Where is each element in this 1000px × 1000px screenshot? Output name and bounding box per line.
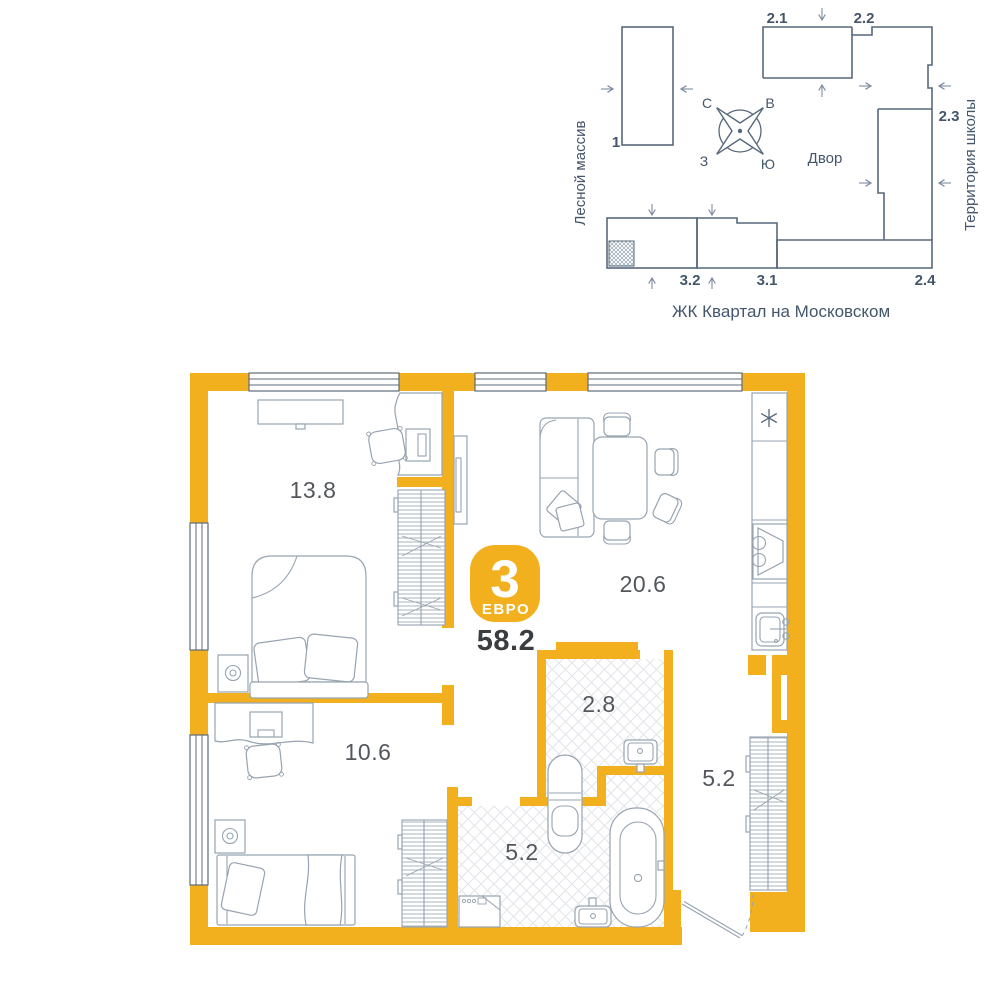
compass-icon: С В З Ю xyxy=(700,95,775,172)
building-label-2-4: 2.4 xyxy=(915,272,937,289)
courtyard-label: Двор xyxy=(808,150,843,167)
building-label-3-1: 3.1 xyxy=(757,272,778,289)
bedroom-2-furniture xyxy=(215,703,447,927)
window xyxy=(475,373,546,391)
room-area-label-wc: 2.8 xyxy=(582,691,615,717)
compass-south-label: Ю xyxy=(761,156,775,172)
room-area-label-living-kitchen: 20.6 xyxy=(620,571,667,597)
compass-east-label: В xyxy=(765,95,774,111)
site-building-2-2 xyxy=(763,27,932,109)
wardrobe-icon xyxy=(398,820,447,927)
sofa-icon xyxy=(540,418,594,537)
window xyxy=(588,373,742,391)
window xyxy=(190,523,208,650)
single-bed-icon xyxy=(217,855,355,925)
room-area-label-hallway: 5.2 xyxy=(702,765,735,791)
area-right-label: Территория школы xyxy=(962,99,979,231)
site-building-2-1 xyxy=(763,27,852,78)
dining-table-icon xyxy=(593,413,683,544)
tv-stand-icon xyxy=(454,436,467,524)
kitchen-sink-icon xyxy=(756,613,789,646)
kitchen-counter xyxy=(752,393,787,650)
tv-icon xyxy=(258,400,343,429)
floorplan-page: С В З Ю 1 2.1 2.2 2.3 2.4 3.1 3.2 Двор Л… xyxy=(0,0,1000,1000)
room-area-label-bathroom: 5.2 xyxy=(505,839,538,865)
site-building-3-1 xyxy=(697,218,777,268)
site-building-2-3 xyxy=(878,109,932,240)
compass-west-label: З xyxy=(700,153,708,169)
wardrobe-icon xyxy=(746,737,787,890)
site-plan: С В З Ю 1 2.1 2.2 2.3 2.4 3.1 3.2 Двор Л… xyxy=(572,8,979,321)
bedroom-1-furniture xyxy=(218,393,445,698)
floor-plan: 13.8 20.6 10.6 2.8 5.2 5.2 3 ЕВРО 58.2 xyxy=(190,373,805,945)
window xyxy=(249,373,399,391)
toilet-icon xyxy=(548,755,582,853)
entrance-door xyxy=(682,895,753,938)
room-count-badge: 3 ЕВРО xyxy=(470,545,540,622)
project-name-label: ЖК Квартал на Московском xyxy=(672,302,890,321)
building-label-2-1: 2.1 xyxy=(767,10,788,27)
total-area-label: 58.2 xyxy=(477,625,535,657)
wardrobe-icon xyxy=(394,490,445,625)
room-area-label-bedroom-1: 13.8 xyxy=(290,477,337,503)
current-building-marker xyxy=(609,241,634,266)
desk-chair-icon xyxy=(244,742,283,780)
window xyxy=(190,735,208,885)
compass-north-label: С xyxy=(702,95,712,111)
washing-machine-icon xyxy=(459,896,500,927)
site-building-1 xyxy=(622,27,673,145)
speaker-icon xyxy=(215,820,245,853)
building-label-1: 1 xyxy=(612,134,620,151)
desk-icon xyxy=(215,703,313,744)
badge-type-label: ЕВРО xyxy=(482,601,530,618)
building-label-2-2: 2.2 xyxy=(854,10,875,27)
bathtub-icon xyxy=(610,808,664,927)
speaker-icon xyxy=(218,655,248,692)
hallway-furniture xyxy=(746,737,787,890)
area-left-label: Лесной массив xyxy=(572,121,589,226)
stove-icon xyxy=(753,524,788,579)
building-label-3-2: 3.2 xyxy=(680,272,701,289)
plan-canvas: С В З Ю 1 2.1 2.2 2.3 2.4 3.1 3.2 Двор Л… xyxy=(0,0,1000,1000)
double-bed-icon xyxy=(250,556,368,698)
building-label-2-3: 2.3 xyxy=(939,108,960,125)
site-building-2-4 xyxy=(777,240,932,268)
room-area-label-bedroom-2: 10.6 xyxy=(345,739,392,765)
